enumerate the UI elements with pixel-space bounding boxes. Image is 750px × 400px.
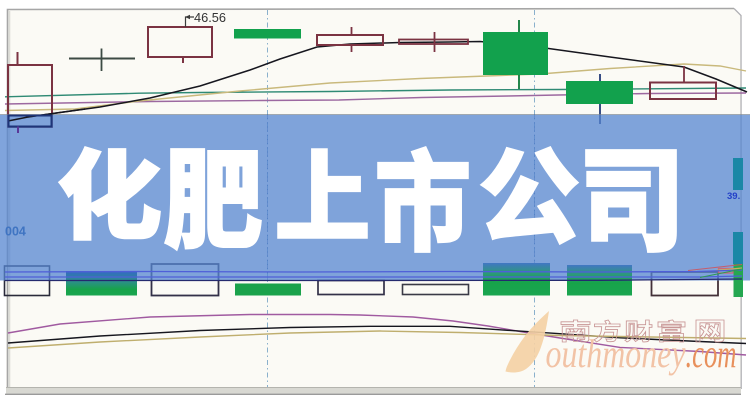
svg-text:46.56: 46.56	[194, 10, 226, 25]
svg-text:004: 004	[5, 225, 26, 239]
svg-text:outhmoney: outhmoney	[546, 332, 687, 376]
svg-text:.com: .com	[686, 332, 737, 376]
svg-text:39.: 39.	[727, 191, 740, 202]
